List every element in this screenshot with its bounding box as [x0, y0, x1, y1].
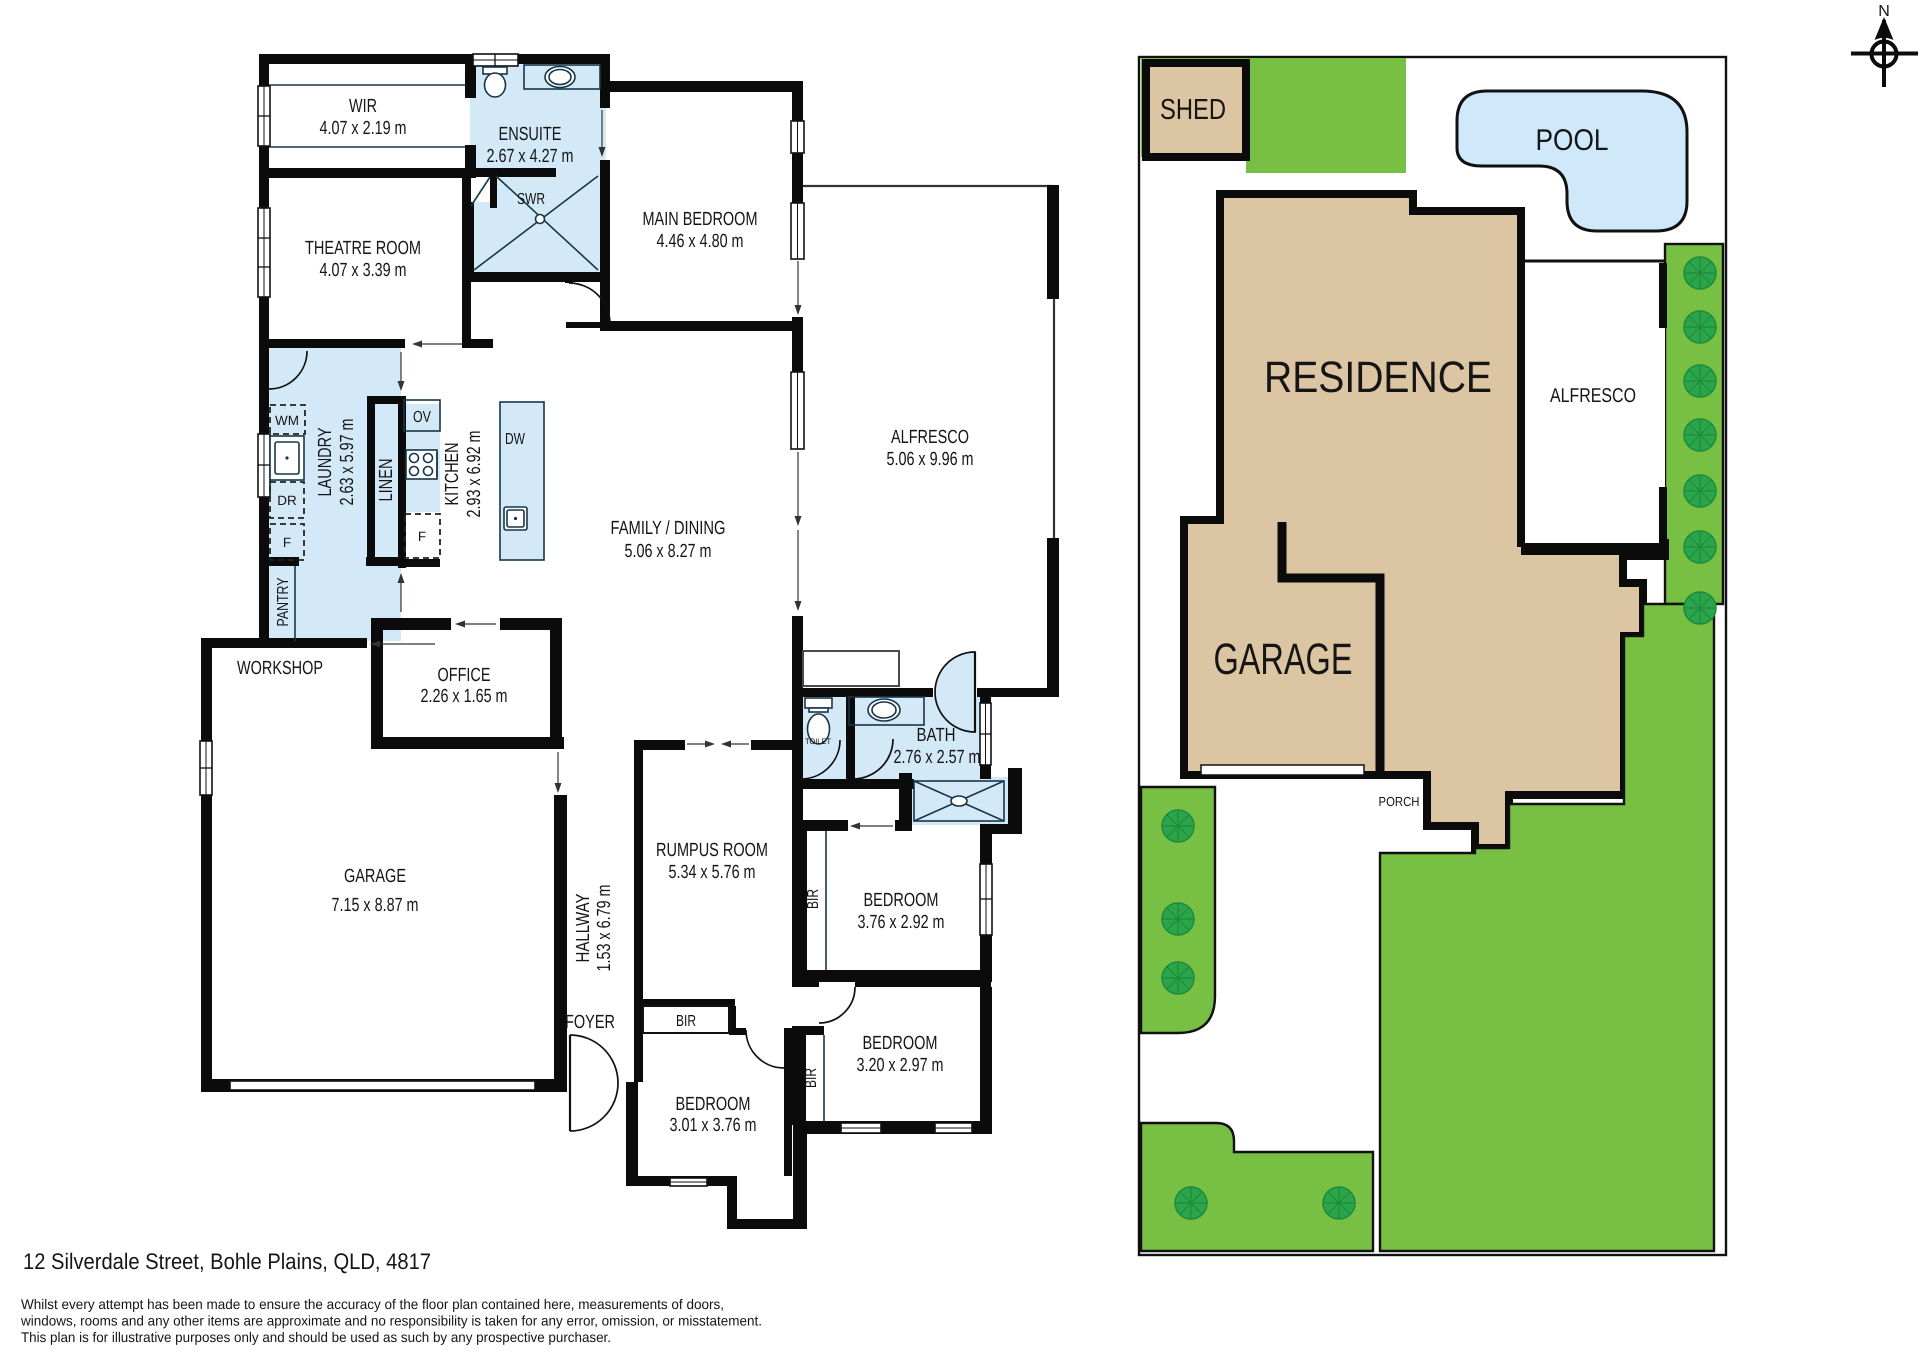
svg-text:BIR: BIR	[803, 1068, 820, 1088]
svg-text:BEDROOM: BEDROOM	[864, 890, 939, 911]
svg-text:ALFRESCO: ALFRESCO	[1550, 385, 1636, 407]
svg-text:PANTRY: PANTRY	[275, 577, 292, 626]
svg-text:5.06 x 8.27 m: 5.06 x 8.27 m	[625, 541, 712, 562]
svg-text:RESIDENCE: RESIDENCE	[1264, 353, 1492, 402]
svg-text:BEDROOM: BEDROOM	[863, 1033, 938, 1054]
svg-text:3.20 x 2.97 m: 3.20 x 2.97 m	[857, 1055, 944, 1076]
svg-text:RUMPUS ROOM: RUMPUS ROOM	[656, 840, 768, 861]
svg-text:OV: OV	[413, 409, 431, 426]
svg-text:5.06 x 9.96 m: 5.06 x 9.96 m	[887, 449, 974, 470]
svg-text:GARAGE: GARAGE	[1214, 635, 1353, 684]
svg-text:F: F	[283, 535, 291, 550]
svg-text:4.07 x 2.19 m: 4.07 x 2.19 m	[320, 118, 407, 139]
svg-text:KITCHEN: KITCHEN	[442, 443, 463, 506]
svg-text:windows, rooms and any other i: windows, rooms and any other items are a…	[20, 1313, 762, 1329]
svg-text:2.26 x 1.65 m: 2.26 x 1.65 m	[421, 686, 508, 707]
svg-text:OFFICE: OFFICE	[438, 665, 491, 686]
svg-text:This plan is for illustrative: This plan is for illustrative purposes o…	[21, 1329, 611, 1345]
svg-text:5.34 x 5.76 m: 5.34 x 5.76 m	[669, 862, 756, 883]
svg-text:FAMILY / DINING: FAMILY / DINING	[611, 518, 726, 539]
svg-text:ENSUITE: ENSUITE	[499, 124, 562, 145]
svg-text:Whilst every attempt has been: Whilst every attempt has been made to en…	[21, 1296, 724, 1312]
svg-text:4.46 x 4.80 m: 4.46 x 4.80 m	[657, 231, 744, 252]
svg-text:BATH: BATH	[917, 725, 956, 746]
svg-text:4.07 x 3.39 m: 4.07 x 3.39 m	[320, 260, 407, 281]
svg-text:TOILET: TOILET	[805, 737, 831, 746]
svg-text:ALFRESCO: ALFRESCO	[891, 427, 969, 448]
svg-text:LINEN: LINEN	[376, 459, 397, 502]
svg-text:2.76 x 2.57 m: 2.76 x 2.57 m	[894, 747, 981, 768]
svg-text:2.63 x 5.97 m: 2.63 x 5.97 m	[337, 419, 358, 506]
svg-text:F: F	[418, 529, 426, 544]
svg-text:WORKSHOP: WORKSHOP	[237, 658, 323, 679]
svg-text:3.01 x 3.76 m: 3.01 x 3.76 m	[670, 1115, 757, 1136]
svg-text:LAUNDRY: LAUNDRY	[315, 427, 336, 496]
svg-text:FOYER: FOYER	[565, 1012, 615, 1033]
svg-text:BIR: BIR	[676, 1013, 696, 1030]
svg-text:GARAGE: GARAGE	[344, 866, 406, 887]
svg-text:BIR: BIR	[805, 889, 822, 909]
svg-text:WM: WM	[275, 413, 299, 428]
svg-text:DR: DR	[277, 493, 297, 508]
svg-text:12 Silverdale Street, Bohle Pl: 12 Silverdale Street, Bohle Plains, QLD,…	[23, 1249, 431, 1274]
svg-text:SHED: SHED	[1160, 94, 1226, 126]
svg-text:1.53 x 6.79 m: 1.53 x 6.79 m	[594, 885, 615, 972]
svg-text:HALLWAY: HALLWAY	[573, 893, 594, 962]
svg-text:WIR: WIR	[349, 96, 377, 117]
svg-text:POOL: POOL	[1536, 124, 1609, 157]
svg-text:DW: DW	[505, 431, 526, 448]
svg-text:7.15 x 8.87 m: 7.15 x 8.87 m	[332, 895, 419, 916]
svg-text:2.67 x 4.27 m: 2.67 x 4.27 m	[487, 146, 574, 167]
svg-text:MAIN BEDROOM: MAIN BEDROOM	[643, 209, 758, 230]
svg-text:SWR: SWR	[517, 191, 545, 208]
svg-text:3.76 x 2.92 m: 3.76 x 2.92 m	[858, 912, 945, 933]
svg-text:PORCH: PORCH	[1379, 794, 1420, 809]
svg-text:THEATRE ROOM: THEATRE ROOM	[305, 238, 421, 259]
svg-text:BEDROOM: BEDROOM	[676, 1094, 751, 1115]
svg-text:2.93 x 6.92 m: 2.93 x 6.92 m	[464, 431, 485, 518]
